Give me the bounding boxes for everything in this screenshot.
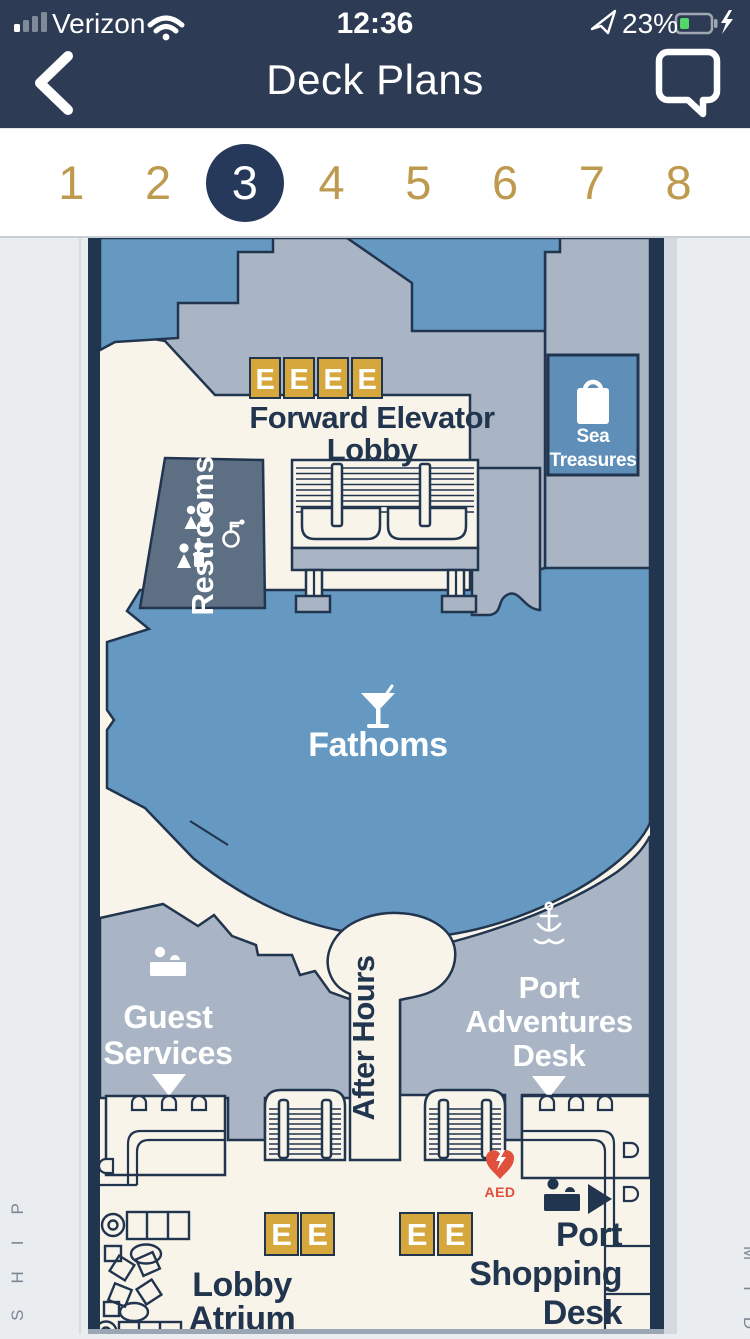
port-adventures-label-3: Desk bbox=[513, 1038, 587, 1073]
header: Verizon 12:36 23% Deck Plans bbox=[0, 0, 750, 128]
map-bottom-edge bbox=[88, 1329, 664, 1334]
after-hours-label: After Hours bbox=[346, 955, 381, 1120]
port-shopping-label-2: Shopping bbox=[469, 1255, 622, 1293]
elevator-marker: E bbox=[307, 1217, 327, 1252]
elevator-marker: E bbox=[323, 364, 342, 396]
deck-map[interactable]: Restrooms Sea Treasures E E E E Forward … bbox=[0, 238, 750, 1334]
nav-bar: Deck Plans bbox=[0, 42, 750, 128]
forward-elevator-lobby-label-2: Lobby bbox=[327, 432, 419, 467]
service-pod bbox=[472, 468, 540, 615]
elevator-marker: E bbox=[255, 364, 274, 396]
battery-percent-label: 23% bbox=[622, 8, 678, 40]
elevator-marker: E bbox=[407, 1217, 427, 1252]
elevator-marker: E bbox=[289, 364, 308, 396]
deck-3-map-canvas: Restrooms Sea Treasures E E E E Forward … bbox=[0, 238, 750, 1334]
port-adventures-label-2: Adventures bbox=[465, 1004, 633, 1039]
elevator-marker: E bbox=[271, 1217, 291, 1252]
page-title: Deck Plans bbox=[0, 56, 750, 104]
guest-services-label-2: Services bbox=[103, 1035, 232, 1071]
deck-number: 1 bbox=[32, 144, 110, 222]
deck-selector: 1 2 3 4 5 6 7 8 bbox=[0, 128, 750, 238]
guest-services-desk bbox=[99, 1096, 225, 1185]
aed-label: AED bbox=[484, 1184, 515, 1200]
deck-tab-6[interactable]: 6 bbox=[462, 129, 549, 236]
lobby-atrium-label-1: Lobby bbox=[192, 1266, 292, 1304]
deck-number: 8 bbox=[640, 144, 718, 222]
side-label-right: MIDSHIP bbox=[740, 1246, 750, 1334]
deck-tab-5[interactable]: 5 bbox=[375, 129, 462, 236]
sea-treasures-shop: Sea Treasures bbox=[548, 355, 638, 475]
elevator-marker: E bbox=[445, 1217, 465, 1252]
forward-elevator-lobby-label-1: Forward Elevator bbox=[249, 400, 495, 435]
deck-number: 6 bbox=[466, 144, 544, 222]
port-shopping-label-1: Port bbox=[556, 1216, 622, 1254]
port-shopping-label-3: Desk bbox=[543, 1294, 623, 1332]
deck-tab-4[interactable]: 4 bbox=[288, 129, 375, 236]
lobby-atrium-label-2: Atrium bbox=[189, 1300, 296, 1334]
deck-tab-3-selected[interactable]: 3 bbox=[202, 129, 289, 236]
deck-tab-1[interactable]: 1 bbox=[28, 129, 115, 236]
deck-number: 4 bbox=[293, 144, 371, 222]
sea-treasures-label-2: Treasures bbox=[549, 450, 636, 471]
status-bar: Verizon 12:36 23% bbox=[0, 0, 750, 42]
chat-bubble-icon bbox=[654, 44, 724, 120]
escalator-right bbox=[425, 1090, 505, 1160]
deck-tab-2[interactable]: 2 bbox=[115, 129, 202, 236]
elevator-marker: E bbox=[357, 364, 376, 396]
shopping-bag-icon bbox=[577, 382, 609, 424]
deck-tab-7[interactable]: 7 bbox=[549, 129, 636, 236]
hull-border-left bbox=[88, 238, 100, 1334]
side-label-left: MIDSHIP bbox=[8, 1177, 27, 1334]
deck-number-selected: 3 bbox=[206, 144, 284, 222]
escalator-left bbox=[265, 1090, 345, 1160]
deck-number: 5 bbox=[379, 144, 457, 222]
hull-border-right bbox=[650, 238, 664, 1334]
deck-number: 7 bbox=[553, 144, 631, 222]
guest-services-label-1: Guest bbox=[123, 999, 213, 1035]
deck-tab-8[interactable]: 8 bbox=[635, 129, 722, 236]
fathoms-label: Fathoms bbox=[308, 726, 448, 764]
port-adventures-label-1: Port bbox=[519, 970, 580, 1005]
sea-treasures-label-1: Sea bbox=[577, 426, 611, 447]
deck-number: 2 bbox=[119, 144, 197, 222]
restrooms-label: Restrooms bbox=[185, 456, 220, 615]
chat-button[interactable] bbox=[654, 44, 724, 120]
